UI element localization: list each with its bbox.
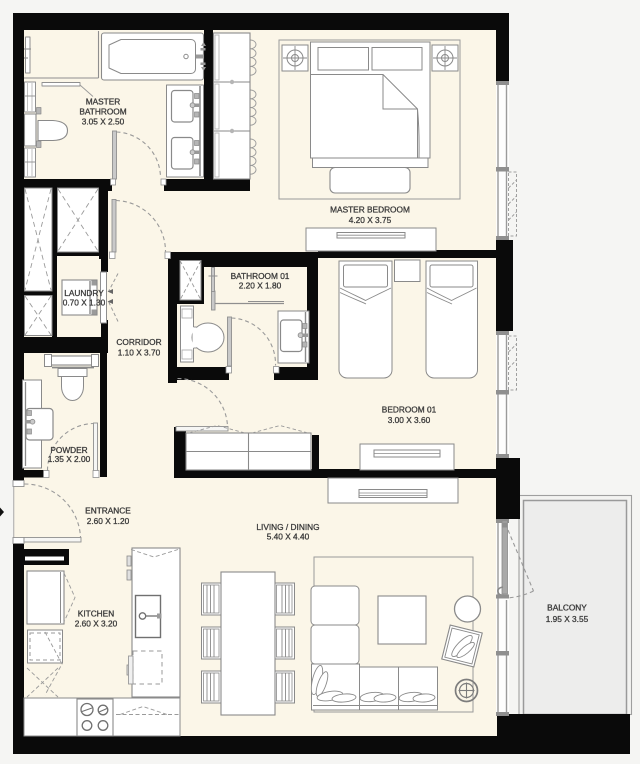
svg-text:3.05 X 2.50: 3.05 X 2.50 — [82, 117, 125, 127]
svg-text:BATHROOM 01: BATHROOM 01 — [231, 271, 290, 281]
svg-text:0.70 X 1.30: 0.70 X 1.30 — [63, 298, 106, 308]
svg-text:LAUNDRY: LAUNDRY — [64, 288, 104, 298]
svg-text:2.60 X 3.20: 2.60 X 3.20 — [75, 619, 118, 629]
svg-text:1.10 X 3.70: 1.10 X 3.70 — [118, 348, 161, 358]
svg-text:LIVING / DINING: LIVING / DINING — [256, 522, 319, 532]
svg-text:MASTER: MASTER — [86, 97, 121, 107]
svg-text:BEDROOM 01: BEDROOM 01 — [382, 405, 437, 415]
svg-text:MASTER BEDROOM: MASTER BEDROOM — [330, 205, 410, 215]
svg-text:2.60 X 1.20: 2.60 X 1.20 — [87, 516, 130, 526]
svg-text:5.40 X 4.40: 5.40 X 4.40 — [267, 532, 310, 542]
svg-text:4.20 X 3.75: 4.20 X 3.75 — [349, 215, 392, 225]
svg-text:BALCONY: BALCONY — [547, 603, 587, 613]
svg-text:3.00 X 3.60: 3.00 X 3.60 — [388, 415, 431, 425]
svg-text:CORRIDOR: CORRIDOR — [116, 337, 161, 347]
svg-text:KITCHEN: KITCHEN — [78, 609, 114, 619]
svg-text:BATHROOM: BATHROOM — [79, 107, 126, 117]
svg-text:2.20 X 1.80: 2.20 X 1.80 — [239, 281, 282, 291]
svg-text:1.95 X 3.55: 1.95 X 3.55 — [546, 614, 589, 624]
svg-text:ENTRANCE: ENTRANCE — [85, 506, 131, 516]
svg-text:1.35 X 2.00: 1.35 X 2.00 — [48, 454, 91, 464]
